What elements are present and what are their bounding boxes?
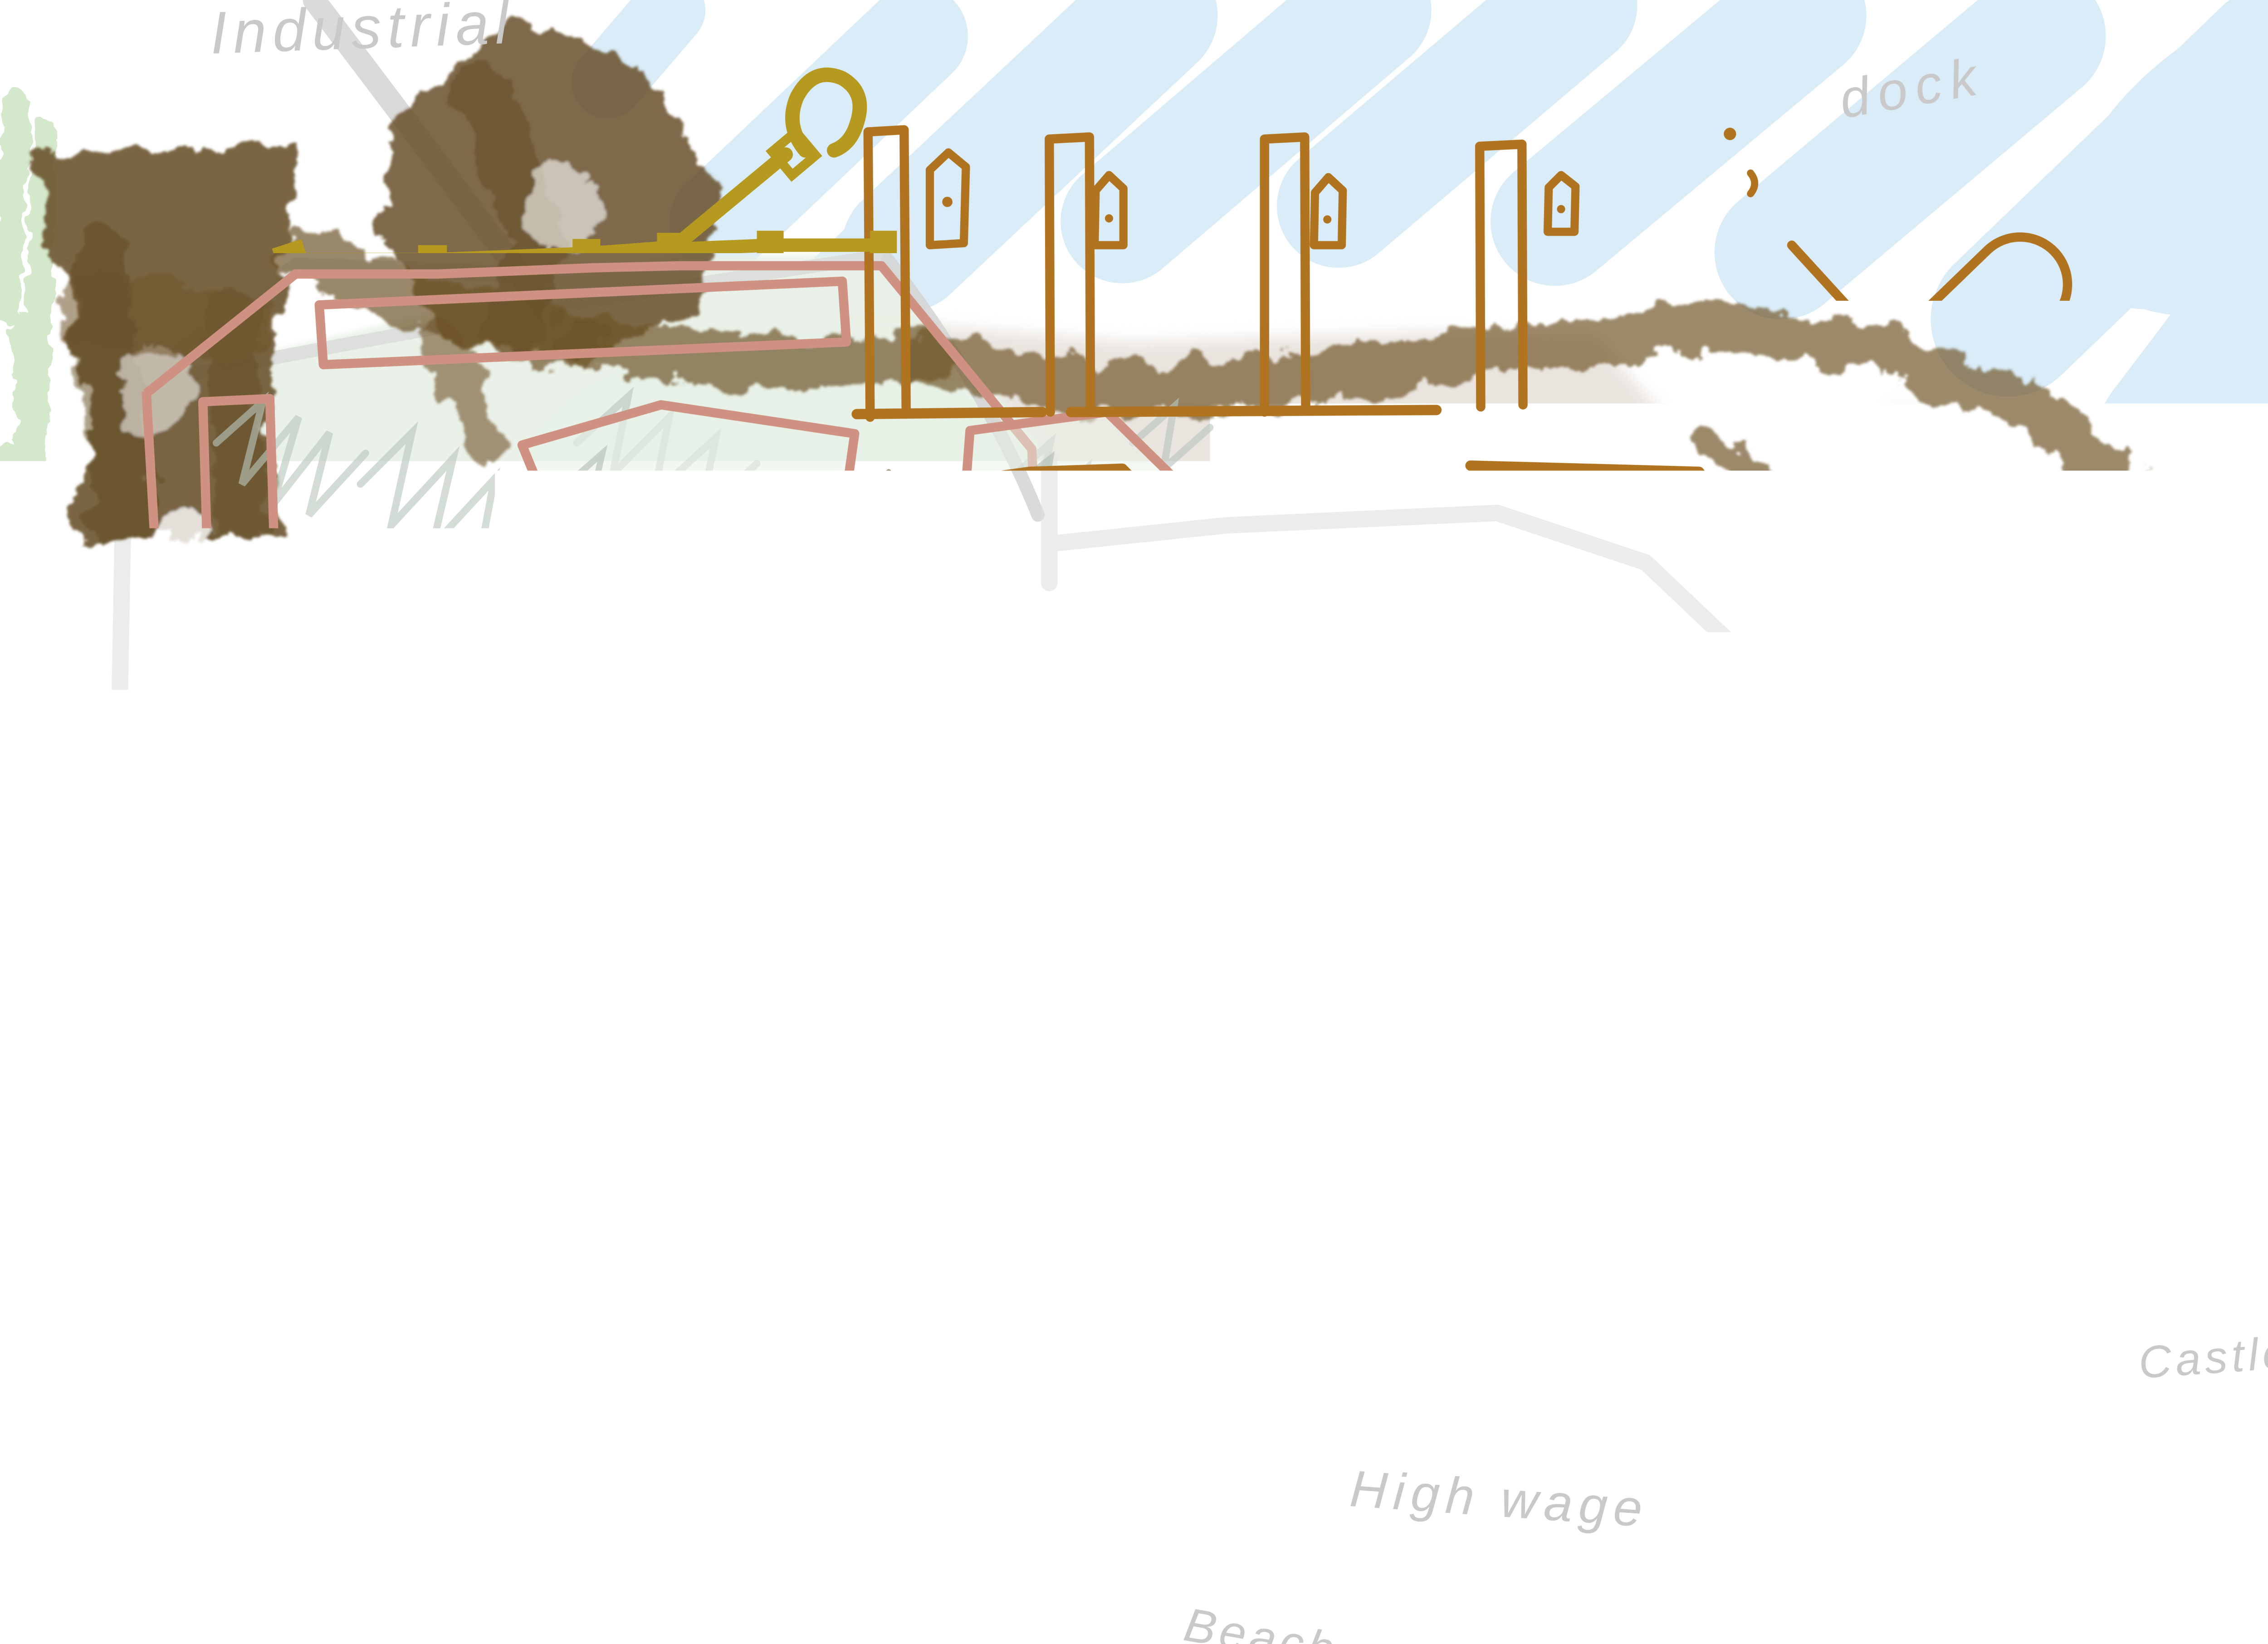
svg-text:Castle: Castle bbox=[2137, 1327, 2268, 1388]
svg-text:Industrial: Industrial bbox=[209, 0, 515, 66]
